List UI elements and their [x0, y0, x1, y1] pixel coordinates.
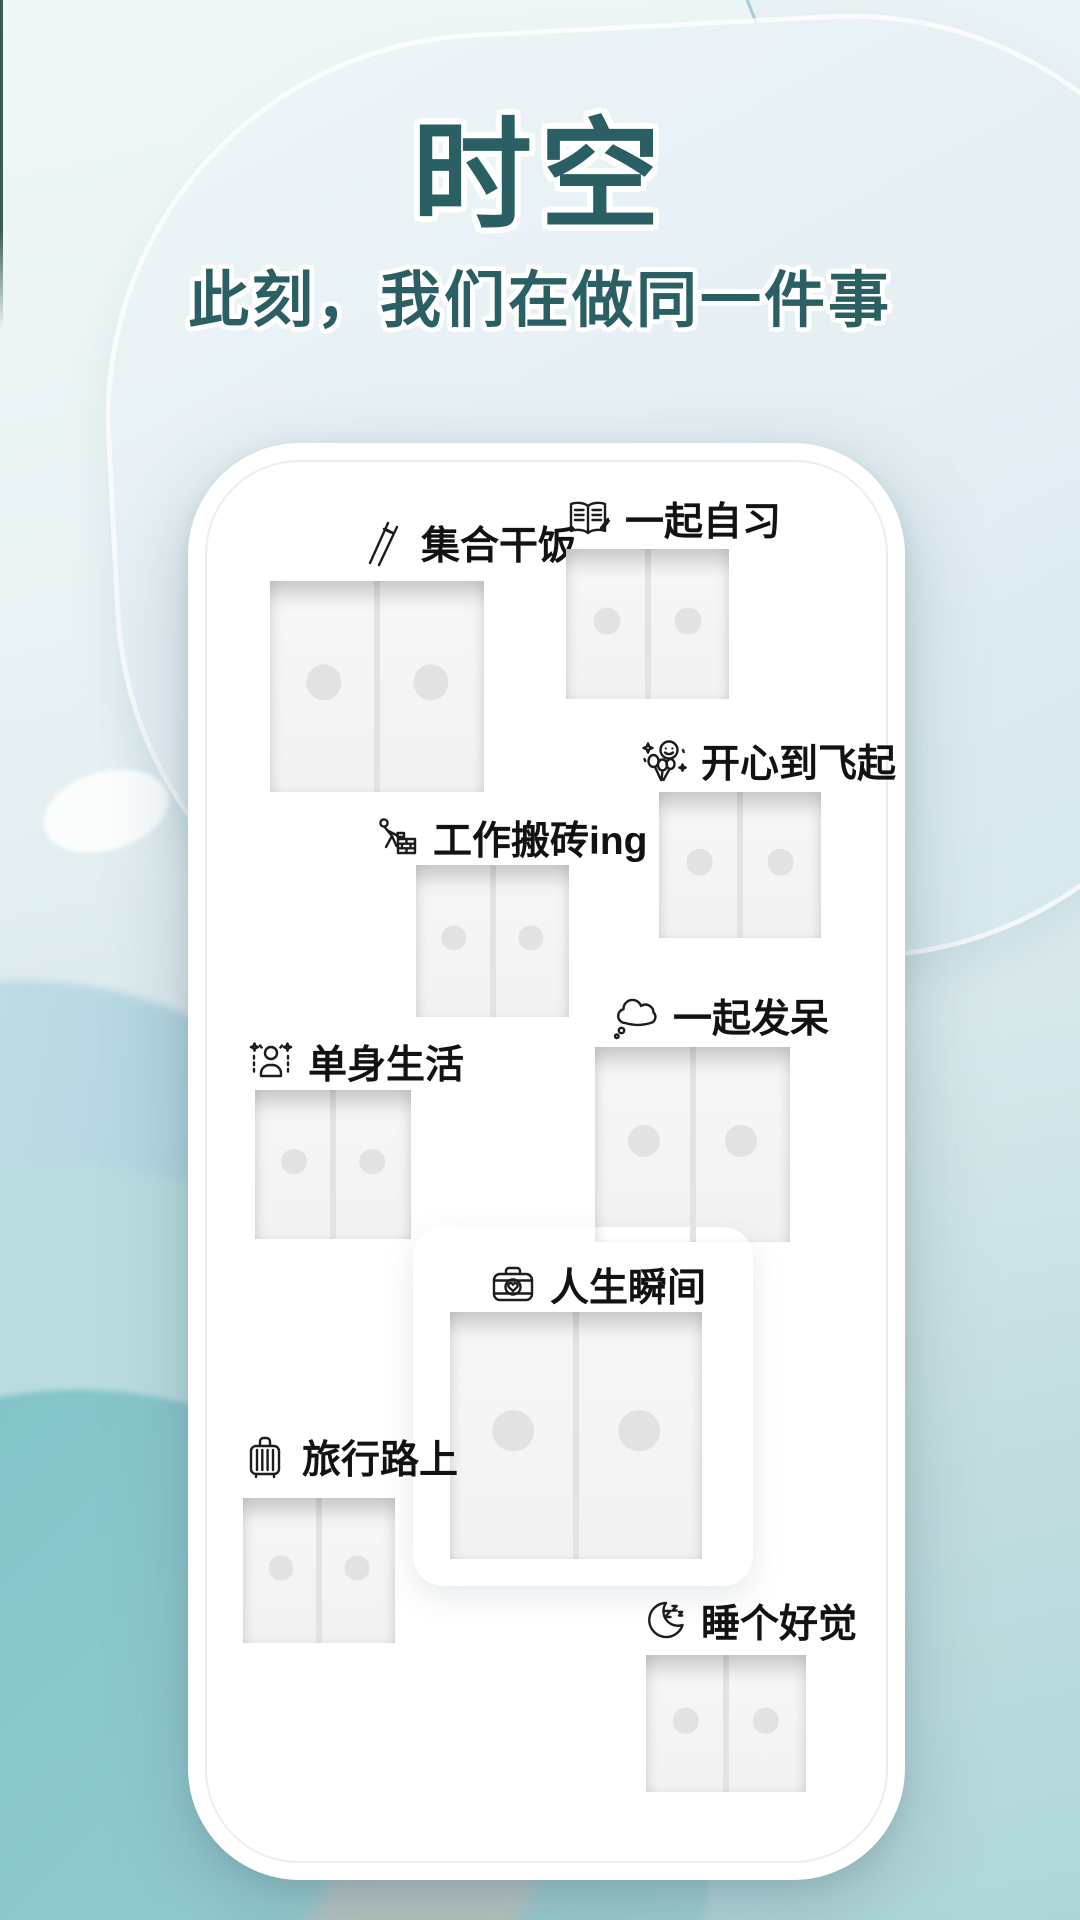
door-right	[493, 865, 570, 1017]
room-label: 睡个好觉	[640, 1597, 857, 1652]
door-right	[693, 1047, 791, 1242]
door-right	[740, 792, 821, 938]
room-label: 人生瞬间	[489, 1261, 706, 1316]
room-label: 集合干饭	[360, 519, 577, 574]
room-label: 单身生活	[247, 1038, 464, 1093]
room-label-text: 一起自习	[625, 503, 781, 542]
door-handle	[518, 925, 543, 950]
door-handle	[767, 849, 794, 876]
room-label-text: 工作搬砖ing	[433, 822, 647, 861]
door-right	[648, 549, 730, 699]
door-handle	[618, 1410, 660, 1452]
single-person-icon	[247, 1038, 295, 1093]
room-doors[interactable]	[255, 1090, 411, 1239]
door-handle	[306, 665, 341, 700]
chopsticks-icon	[360, 519, 408, 574]
happy-balloons-icon	[640, 737, 688, 792]
page-subtitle: 此刻，我们在做同一件事	[0, 270, 1080, 331]
room-doors[interactable]	[270, 581, 484, 792]
door-handle	[413, 665, 448, 700]
worker-bricks-icon	[372, 814, 420, 869]
room-label: 旅行路上	[241, 1433, 458, 1488]
door-right	[319, 1498, 395, 1643]
door-handle	[593, 608, 620, 635]
room-doors[interactable]	[243, 1498, 395, 1643]
door-handle	[492, 1410, 534, 1452]
room-label: 开心到飞起	[640, 737, 896, 792]
door-handle	[675, 608, 702, 635]
room-doors[interactable]	[595, 1047, 790, 1242]
door-left	[646, 1655, 726, 1792]
room-label-text: 单身生活	[308, 1046, 464, 1085]
door-left	[450, 1312, 576, 1559]
door-handle	[344, 1555, 369, 1580]
door-left	[243, 1498, 319, 1643]
door-handle	[628, 1125, 660, 1157]
door-right	[726, 1655, 806, 1792]
room-label: 一起自习	[564, 495, 781, 550]
door-handle	[673, 1708, 699, 1734]
room-label-text: 开心到飞起	[701, 745, 896, 784]
open-book-icon	[564, 495, 612, 550]
phone-mockup: 集合干饭 一起自习	[188, 443, 905, 1880]
room-doors[interactable]	[450, 1312, 702, 1559]
door-left	[566, 549, 648, 699]
room-label-text: 睡个好觉	[701, 1605, 857, 1644]
room-label-text: 旅行路上	[302, 1441, 458, 1480]
page-title: 时空	[0, 116, 1080, 236]
room-label-text: 一起发呆	[673, 1000, 829, 1039]
room-card-life-moments: 人生瞬间	[413, 1227, 753, 1586]
door-left	[659, 792, 740, 938]
door-right	[377, 581, 484, 792]
room-label-text: 集合干饭	[421, 527, 577, 566]
luggage-icon	[241, 1433, 289, 1488]
room-doors[interactable]	[659, 792, 821, 938]
door-left	[595, 1047, 693, 1242]
thought-bubble-icon	[612, 992, 660, 1047]
room-doors[interactable]	[566, 549, 729, 699]
door-handle	[725, 1125, 757, 1157]
room-label-text: 人生瞬间	[550, 1269, 706, 1308]
door-right	[576, 1312, 702, 1559]
door-left	[416, 865, 493, 1017]
room-label: 一起发呆	[612, 992, 829, 1047]
background-white-oval	[34, 756, 179, 866]
door-right	[333, 1090, 411, 1239]
room-doors[interactable]	[416, 865, 569, 1017]
moon-zzz-icon	[640, 1597, 688, 1652]
camera-heart-icon	[489, 1261, 537, 1316]
door-handle	[686, 849, 713, 876]
promo-screen: 时空 此刻，我们在做同一件事 集合干饭	[0, 0, 1080, 1920]
door-handle	[281, 1149, 307, 1175]
door-handle	[753, 1708, 779, 1734]
room-label: 工作搬砖ing	[372, 814, 647, 869]
door-handle	[442, 925, 467, 950]
door-handle	[268, 1555, 293, 1580]
room-doors[interactable]	[646, 1655, 806, 1792]
door-left	[270, 581, 377, 792]
door-handle	[359, 1149, 385, 1175]
door-left	[255, 1090, 333, 1239]
